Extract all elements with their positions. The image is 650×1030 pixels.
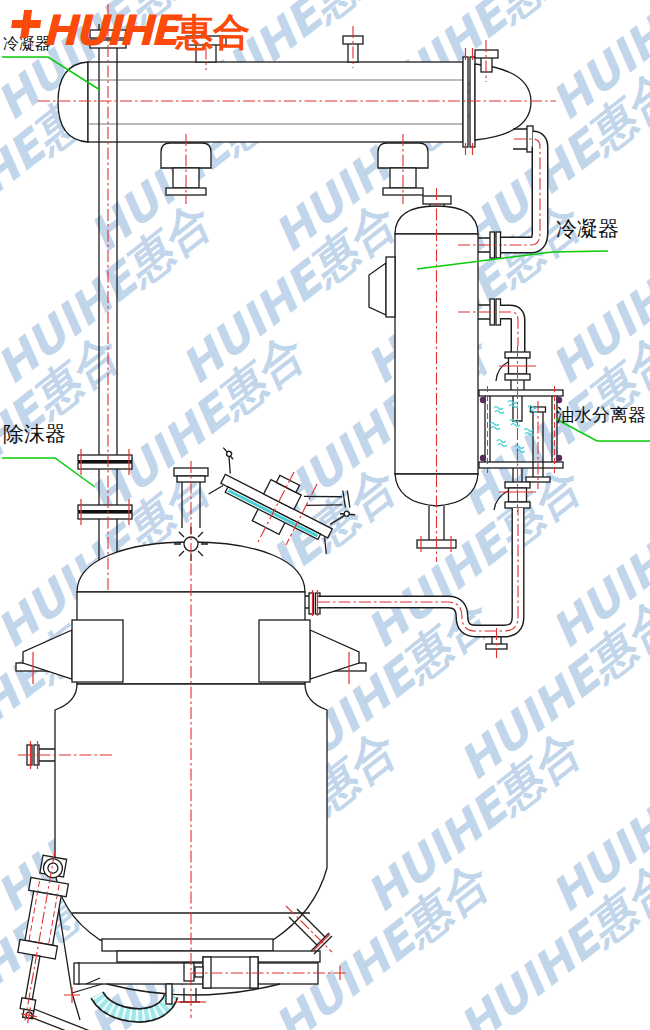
label-oil-water-separator: 油水分离器 [556, 404, 646, 425]
label-condenser-right: 冷凝器 [556, 217, 619, 241]
vessel-lug-right [259, 620, 366, 682]
valve-condenser-outlet [496, 352, 530, 390]
vessel-bracket [369, 263, 386, 315]
drawing-canvas: HUIHE惠合HUIHE惠合HUIHE惠合HUIHE惠合HUIHE惠合HUIHE… [0, 0, 650, 1030]
label-demister: 除沫器 [3, 422, 66, 446]
logo-chinese-text: 惠合 [174, 11, 250, 54]
logo: HUIHE 惠合 [10, 6, 250, 55]
logo-latin-text: HUIHE [42, 6, 183, 55]
